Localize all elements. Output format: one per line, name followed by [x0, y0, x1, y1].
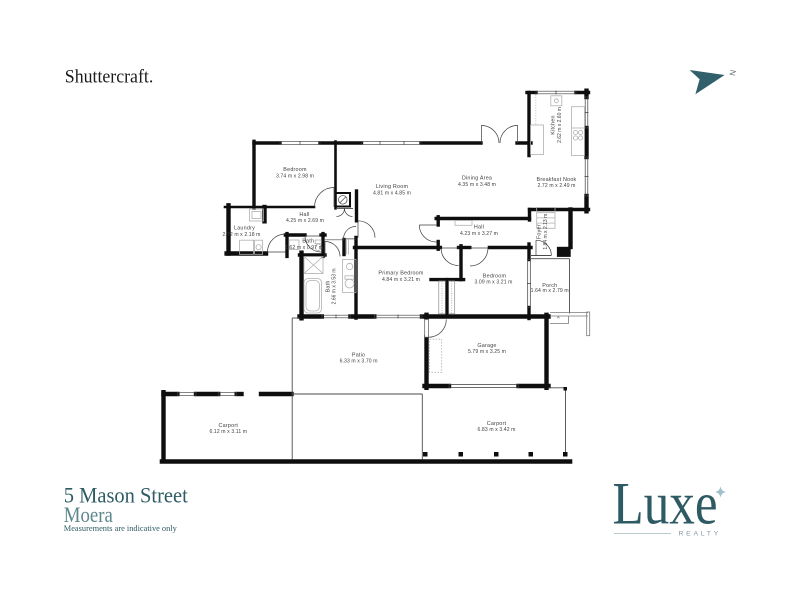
svg-text:Bath: Bath	[302, 239, 314, 245]
svg-text:Bedroom: Bedroom	[483, 273, 507, 279]
svg-text:Breakfast Nook: Breakfast Nook	[537, 177, 577, 183]
svg-text:Patio: Patio	[352, 352, 365, 358]
svg-text:4.35 m x 3.48 m: 4.35 m x 3.48 m	[458, 182, 496, 188]
svg-text:Living Room: Living Room	[376, 184, 409, 190]
svg-text:Hall: Hall	[299, 212, 309, 218]
svg-text:4.84 m x 3.21 m: 4.84 m x 3.21 m	[382, 277, 420, 283]
svg-text:Laundry: Laundry	[234, 226, 255, 232]
svg-text:Measurements are indicative on: Measurements are indicative only	[64, 524, 177, 533]
svg-text:1.62 m x 0.97 m: 1.62 m x 0.97 m	[285, 245, 323, 251]
svg-text:2.72 m x 2.18 m: 2.72 m x 2.18 m	[222, 232, 260, 238]
svg-text:4.25 m x 2.69 m: 4.25 m x 2.69 m	[286, 218, 324, 224]
svg-text:Shuttercraft.: Shuttercraft.	[65, 66, 154, 87]
svg-text:Bath: Bath	[325, 280, 331, 292]
svg-text:2.62 m x 2.60 m: 2.62 m x 2.60 m	[557, 107, 563, 143]
svg-text:Dining Area: Dining Area	[462, 176, 492, 182]
svg-text:4.23 m x 3.27 m: 4.23 m x 3.27 m	[460, 231, 498, 237]
svg-text:Primary Bedroom: Primary Bedroom	[378, 271, 424, 277]
svg-text:6.83 m x 3.42 m: 6.83 m x 3.42 m	[477, 427, 515, 433]
svg-text:Foyer: Foyer	[537, 224, 543, 239]
svg-text:Hall: Hall	[474, 225, 484, 231]
svg-text:Carport: Carport	[487, 421, 507, 427]
svg-text:4.81 m x 4.85 m: 4.81 m x 4.85 m	[373, 191, 411, 197]
svg-text:6.33 m x 3.70 m: 6.33 m x 3.70 m	[340, 359, 378, 365]
svg-text:Kitchen: Kitchen	[551, 115, 557, 135]
svg-text:REALTY: REALTY	[679, 530, 722, 537]
svg-text:3.74 m x 2.98 m: 3.74 m x 2.98 m	[276, 174, 314, 180]
svg-text:A: A	[557, 315, 560, 320]
svg-text:1.64 m x 2.79 m: 1.64 m x 2.79 m	[531, 288, 569, 294]
svg-text:1.84 m x 2.13 m: 1.84 m x 2.13 m	[543, 214, 549, 250]
svg-text:Garage: Garage	[477, 343, 496, 349]
svg-text:Luxe: Luxe	[613, 471, 718, 537]
svg-text:N: N	[727, 69, 737, 76]
svg-text:Carport: Carport	[219, 423, 239, 429]
svg-text:2.66 m x 3.53 m: 2.66 m x 3.53 m	[332, 268, 338, 304]
svg-text:Bedroom: Bedroom	[283, 167, 307, 173]
svg-text:3.09 m x 3.21 m: 3.09 m x 3.21 m	[474, 280, 512, 286]
svg-text:2.72 m x 2.49 m: 2.72 m x 2.49 m	[537, 183, 575, 189]
svg-text:5.79 m x 3.25 m: 5.79 m x 3.25 m	[468, 349, 506, 355]
svg-text:6.12 m x 3.11 m: 6.12 m x 3.11 m	[209, 429, 247, 435]
